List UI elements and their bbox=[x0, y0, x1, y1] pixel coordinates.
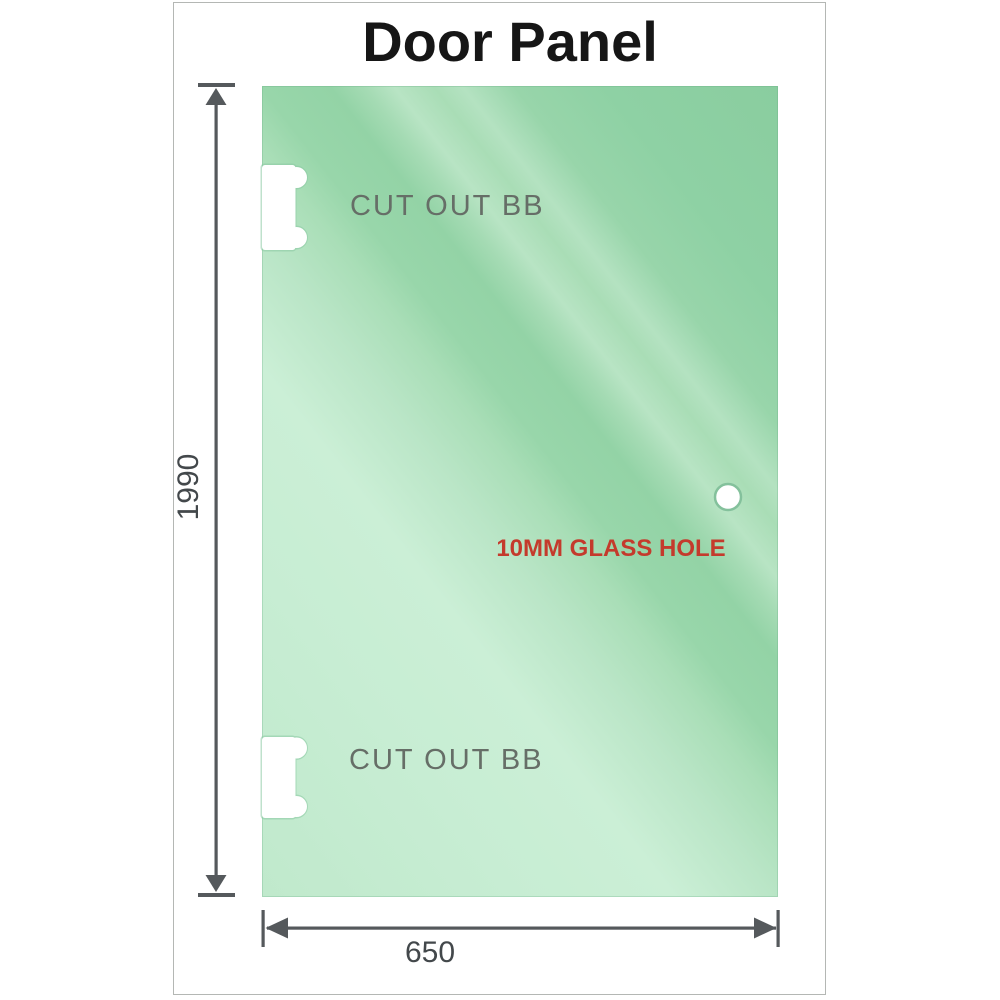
height-dim-top-tick bbox=[198, 83, 235, 87]
hinge-cutout-top-shape bbox=[262, 165, 307, 250]
arrow-down-icon bbox=[206, 875, 227, 892]
width-dimension bbox=[262, 910, 780, 947]
hinge-cutout-bottom bbox=[261, 736, 309, 820]
glass-hole-label: 10MM GLASS HOLE bbox=[496, 537, 725, 561]
glass-hole bbox=[715, 484, 741, 510]
hinge-cutout-bottom-shape bbox=[262, 737, 307, 818]
height-dim-bottom-tick bbox=[198, 893, 235, 897]
hinge-cutout-top bbox=[261, 164, 309, 252]
width-dim-right-tick bbox=[777, 910, 780, 947]
arrow-left-icon bbox=[266, 918, 289, 939]
door-panel-diagram: Door Panel bbox=[0, 0, 1000, 1000]
diagram-overlay bbox=[0, 0, 1000, 1000]
arrow-right-icon bbox=[754, 918, 777, 939]
arrow-up-icon bbox=[206, 88, 227, 105]
hinge-cutout-top-label: CUT OUT BB bbox=[350, 192, 545, 221]
width-dim-left-tick bbox=[262, 910, 265, 947]
width-dimension-label: 650 bbox=[405, 938, 455, 968]
width-dim-line bbox=[267, 927, 776, 930]
height-dim-line bbox=[215, 98, 218, 882]
height-dimension-label: 1990 bbox=[174, 454, 204, 521]
hinge-cutout-bottom-label: CUT OUT BB bbox=[349, 746, 544, 775]
